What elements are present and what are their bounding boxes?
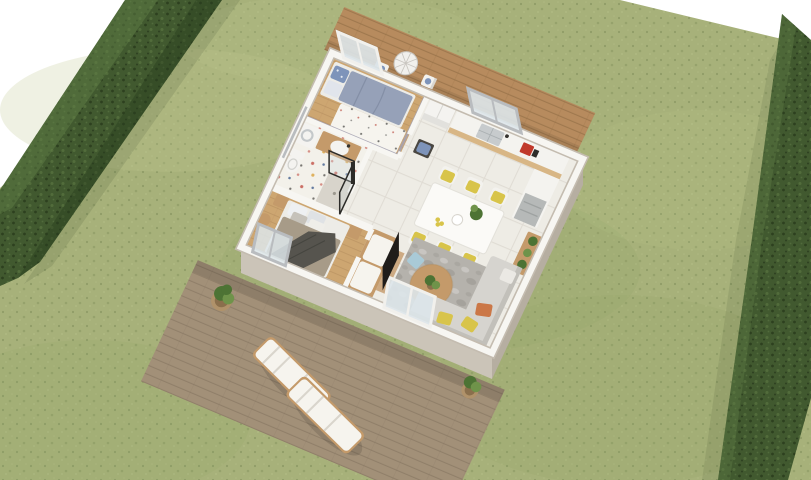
orange-cushion [475, 303, 493, 318]
floorplan-render-screenshot [0, 0, 811, 480]
shower-column [351, 162, 354, 184]
scene-canvas [0, 0, 811, 480]
